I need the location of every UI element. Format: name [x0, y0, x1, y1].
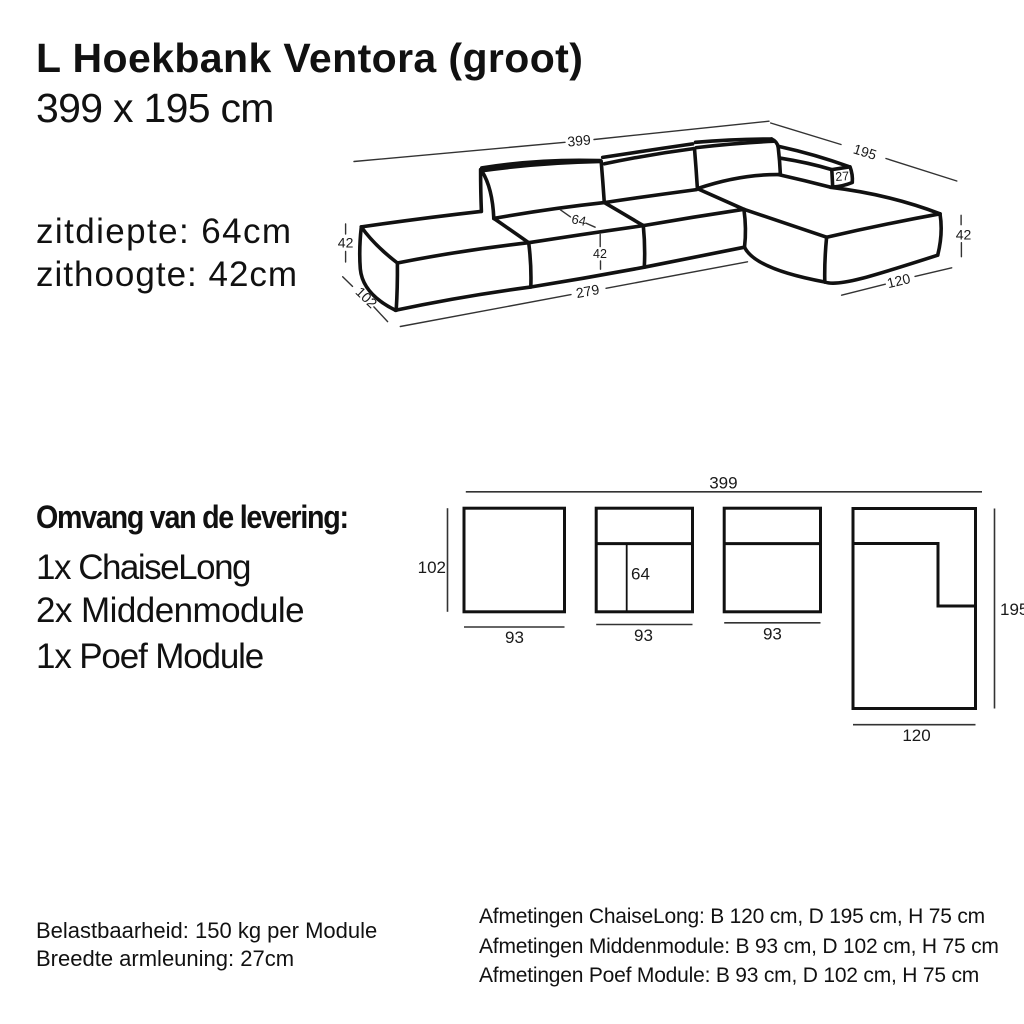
- svg-text:102: 102: [418, 558, 446, 577]
- svg-text:93: 93: [505, 628, 524, 647]
- svg-text:195: 195: [1000, 600, 1024, 619]
- svg-text:93: 93: [763, 625, 782, 644]
- svg-text:399: 399: [709, 474, 737, 493]
- svg-text:93: 93: [634, 626, 653, 645]
- svg-text:64: 64: [631, 565, 650, 584]
- svg-text:120: 120: [902, 726, 930, 745]
